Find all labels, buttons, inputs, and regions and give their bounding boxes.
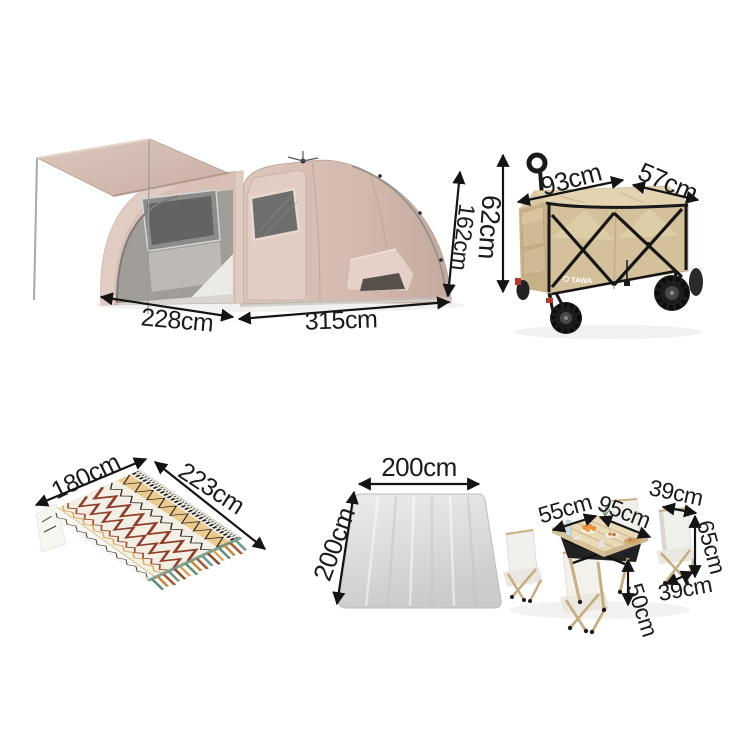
tent-awning-pole bbox=[34, 158, 37, 300]
mat-body bbox=[339, 494, 501, 608]
tent-width-dimension-label: 228cm bbox=[140, 305, 214, 336]
wagon-handle bbox=[529, 155, 545, 171]
wagon-brake bbox=[515, 278, 521, 285]
mat-illustration bbox=[339, 494, 501, 608]
wagon-brake-lever bbox=[546, 298, 553, 303]
wagon-height-dimension-label: 62cm bbox=[473, 194, 504, 260]
chair-left-far bbox=[503, 530, 543, 603]
mat-width-dimension-label: 200cm bbox=[381, 454, 457, 480]
tent-illustration bbox=[34, 139, 465, 314]
wagon-ground-shadow bbox=[513, 325, 703, 339]
product-dimensions-sheet: TAWA bbox=[0, 0, 750, 750]
wagon-brand-label: TAWA bbox=[571, 276, 593, 286]
tent-length-dimension-label: 315cm bbox=[304, 307, 377, 335]
wagon-wheel bbox=[689, 268, 703, 296]
table-set-illustration bbox=[503, 499, 696, 634]
